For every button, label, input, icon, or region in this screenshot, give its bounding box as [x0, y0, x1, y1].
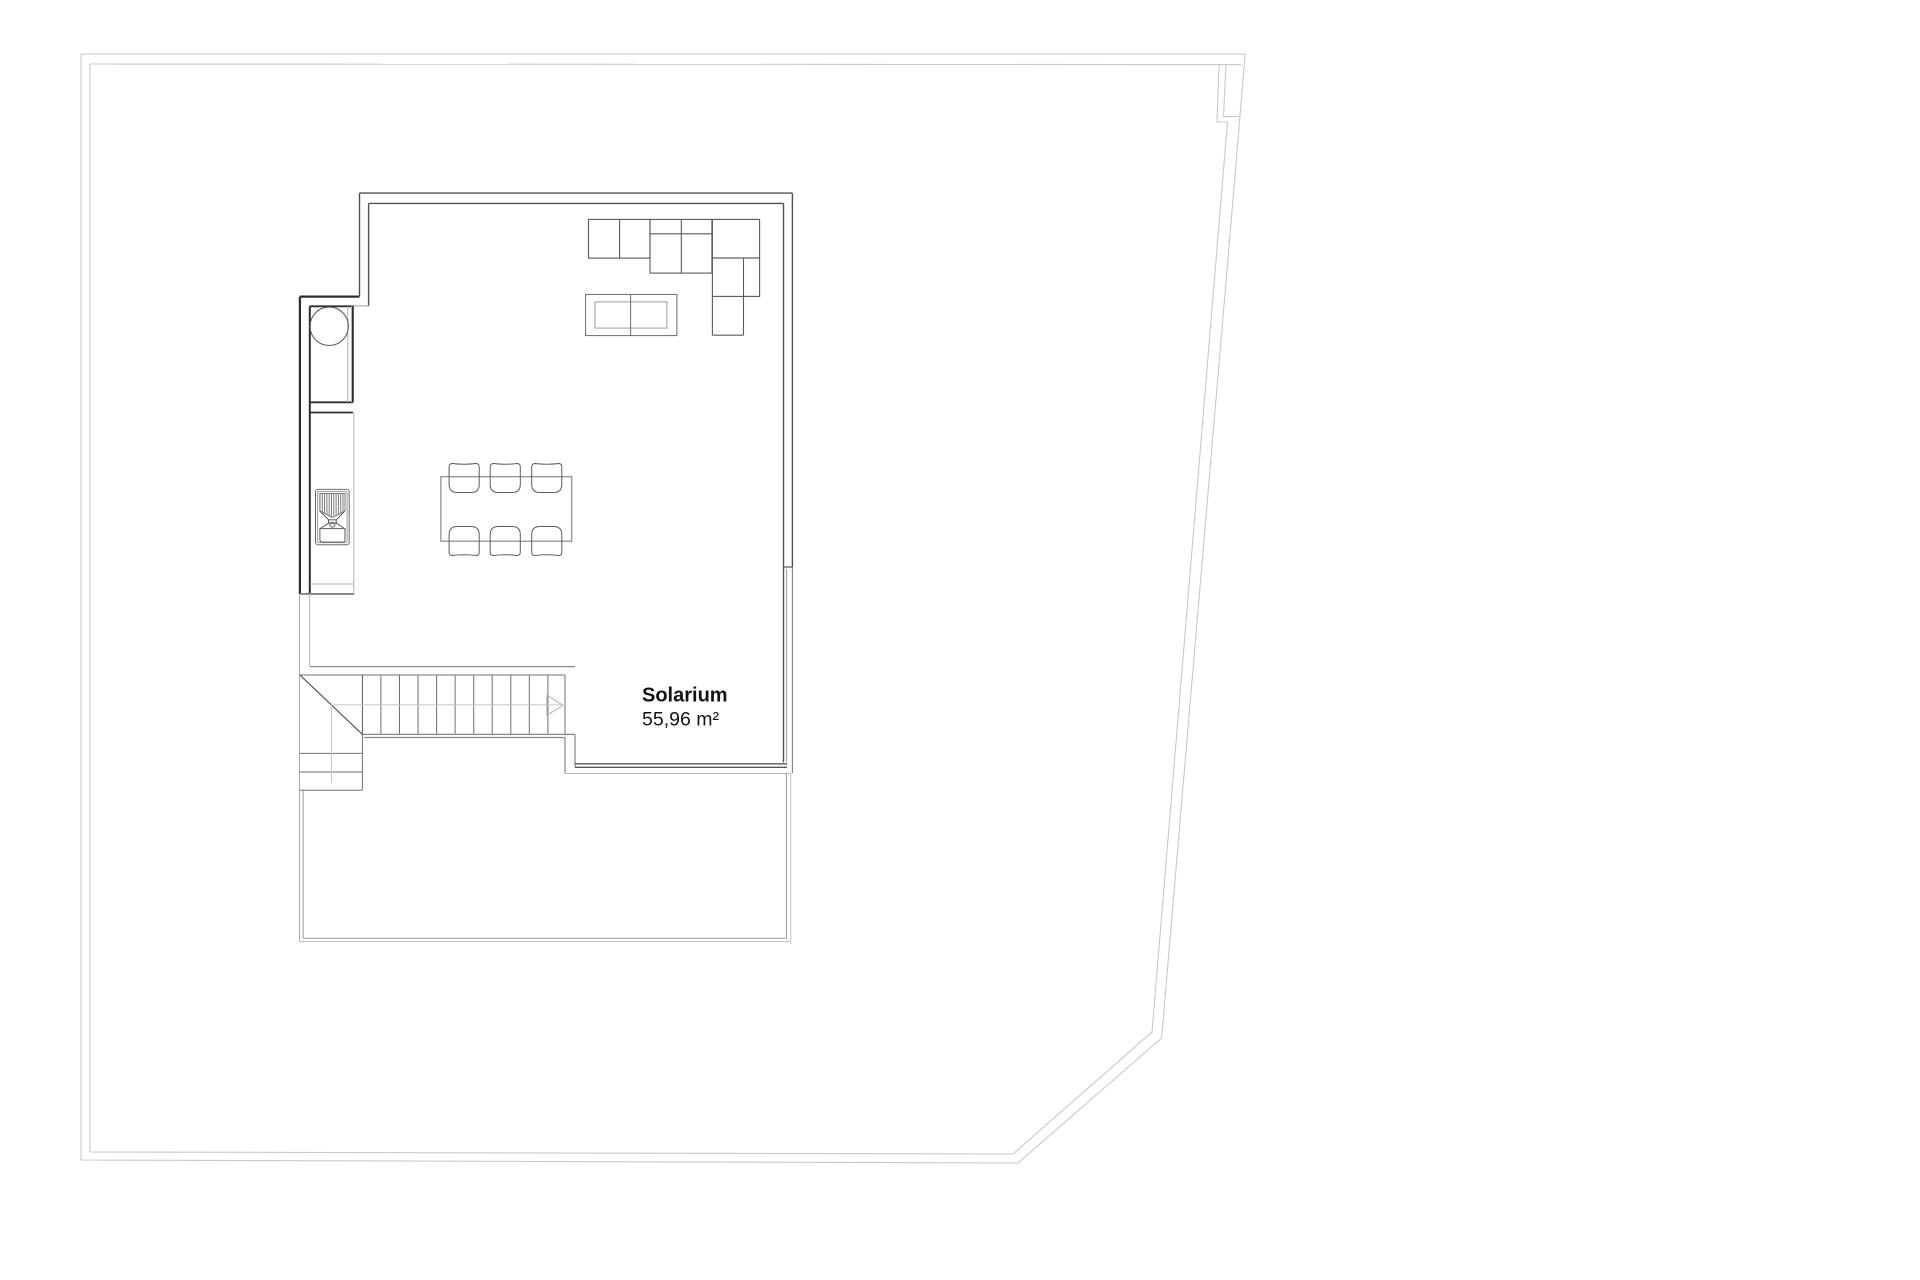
svg-text:Solarium: Solarium	[642, 685, 728, 707]
svg-text:55,96 m²: 55,96 m²	[642, 709, 719, 731]
